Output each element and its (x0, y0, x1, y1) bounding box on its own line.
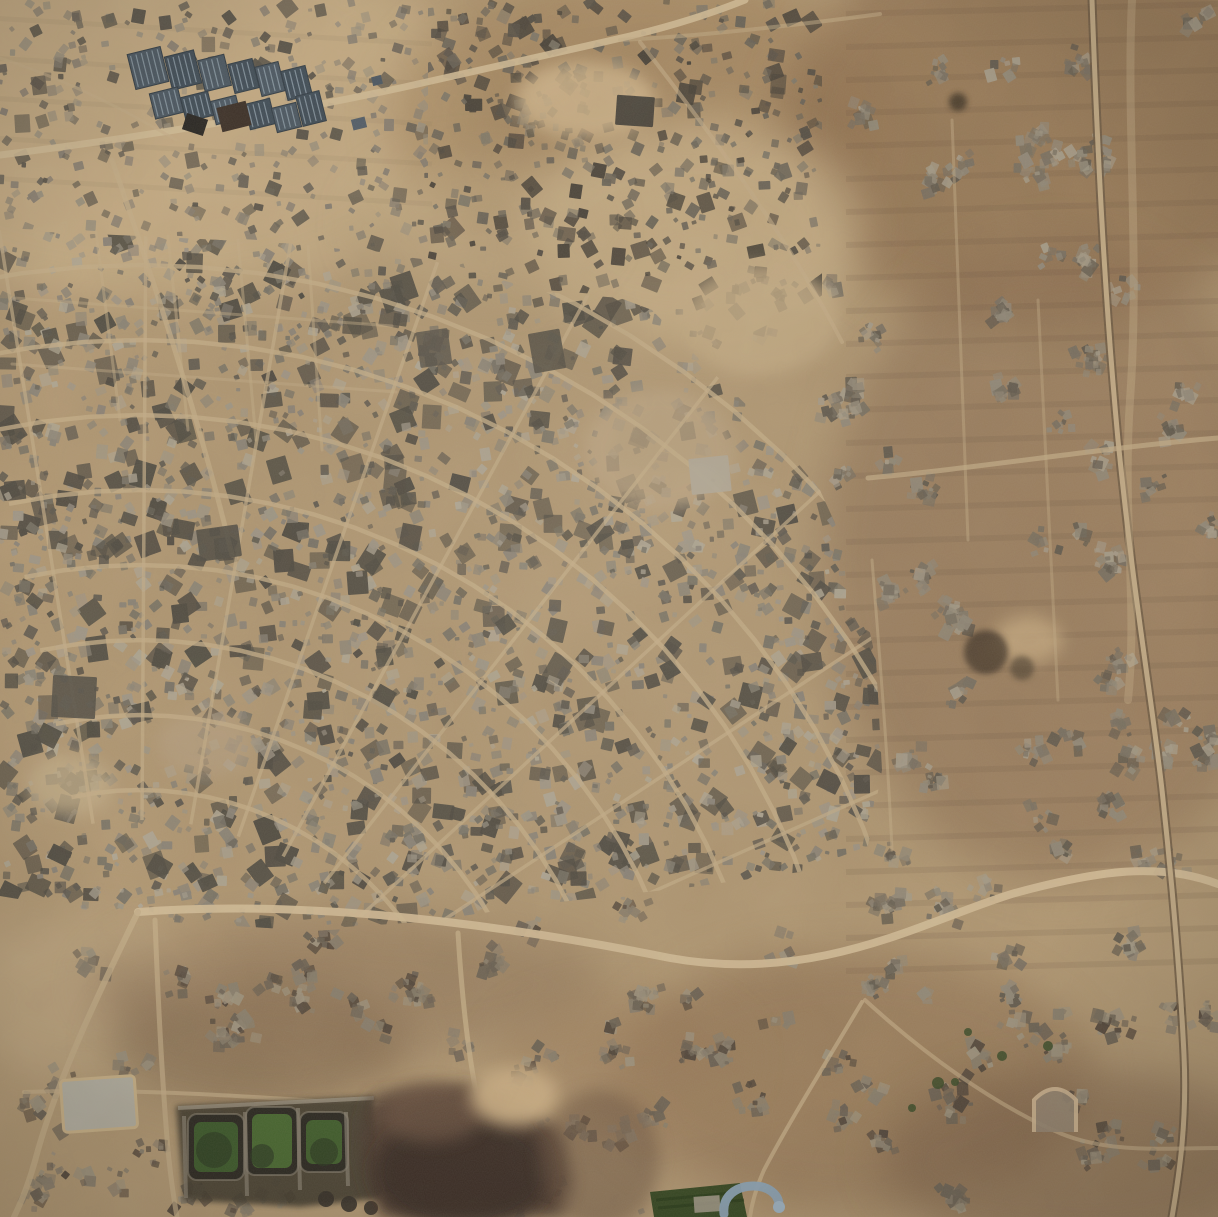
satellite-image: satellite-aerial-view (0, 0, 1218, 1217)
satellite-svg (0, 0, 1218, 1217)
vignette-overlay (0, 0, 1218, 1217)
